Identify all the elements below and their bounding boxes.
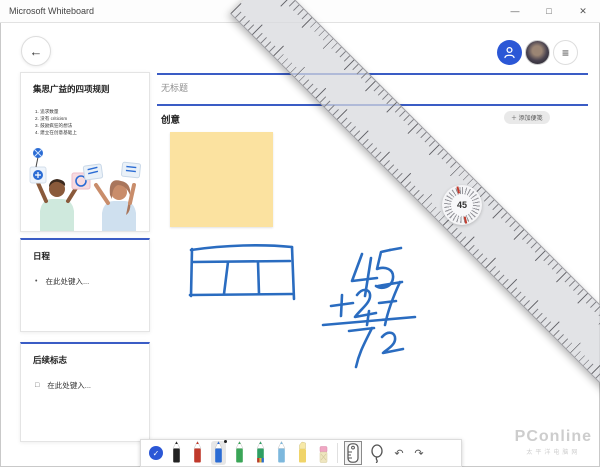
close-button[interactable]: ✕	[566, 0, 600, 22]
highlighter[interactable]	[295, 441, 310, 465]
top-right-actions: ≡	[497, 40, 578, 65]
brainstorm-rules-list: 1. 追求数量 2. 没有 criticism 3. 鼓励疯狂的想法 4. 建立…	[35, 108, 149, 136]
ink-digit-2	[382, 333, 403, 353]
app-title: Microsoft Whiteboard	[9, 6, 94, 16]
pen-lightblue-icon	[275, 441, 288, 463]
user-avatar[interactable]	[525, 40, 550, 65]
rule-item: 3. 鼓励疯狂的想法	[35, 122, 149, 129]
back-arrow-icon: ←	[30, 44, 43, 59]
add-note-button[interactable]: ＋ 添加便笺	[504, 111, 550, 124]
pen-red-icon	[191, 441, 204, 463]
brainstorm-illustration	[22, 139, 148, 231]
pen-galaxy-icon	[254, 441, 267, 463]
brainstorm-card[interactable]: 集思广益的四项规则 1. 追求数量 2. 没有 criticism 3. 鼓励疯…	[20, 72, 150, 232]
rule-item: 2. 没有 criticism	[35, 115, 149, 122]
ruler[interactable]	[230, 0, 600, 438]
ink-digit-2	[355, 290, 376, 317]
hamburger-icon: ≡	[562, 47, 569, 59]
ruler-icon	[347, 443, 359, 463]
ink-table-right	[292, 247, 294, 299]
pen-red[interactable]	[190, 441, 205, 465]
eraser[interactable]	[316, 441, 331, 465]
ink-table-col1	[224, 262, 228, 294]
ruler-ticks-bottom	[231, 7, 600, 437]
pen-green[interactable]	[232, 441, 247, 465]
ink-table-col2	[258, 262, 259, 294]
agenda-placeholder-row[interactable]: • 在此处键入...	[35, 276, 149, 287]
ink-carry-mark	[367, 311, 369, 325]
highlighter-icon	[296, 441, 309, 463]
pen-lightblue[interactable]	[274, 441, 289, 465]
ruler-tool-button[interactable]	[344, 441, 362, 465]
lasso-icon	[370, 443, 384, 463]
toolbar-divider	[337, 443, 338, 463]
watermark-subtitle: 太平洋电脑网	[515, 447, 592, 456]
menu-button[interactable]: ≡	[553, 40, 578, 65]
ink-digit-5	[390, 248, 401, 250]
ink-digit-7	[379, 301, 396, 303]
ruler-angle-dial[interactable]: 45	[442, 185, 482, 225]
sticky-note[interactable]	[170, 132, 273, 227]
person-icon	[503, 46, 516, 59]
ink-digit-4	[365, 258, 371, 296]
agenda-placeholder: 在此处键入...	[45, 276, 89, 287]
minimize-button[interactable]: —	[498, 0, 532, 22]
ideas-section-title[interactable]: 创意	[161, 112, 180, 126]
maximize-button[interactable]: □	[532, 0, 566, 22]
ink-plus	[331, 303, 353, 306]
brainstorm-card-title: 集思广益的四项规则	[33, 83, 139, 95]
check-icon: ✓	[153, 449, 160, 458]
window-controls: — □ ✕	[498, 0, 600, 22]
ink-table-bottom	[190, 294, 292, 295]
followup-placeholder: 在此处键入...	[47, 380, 91, 391]
pen-black-icon	[170, 441, 183, 463]
eraser-icon	[317, 441, 330, 463]
ink-digit-5	[376, 250, 393, 288]
ink-digit-4	[352, 254, 377, 281]
ruler-ticks-bottom-major	[231, 3, 600, 437]
pen-toolbar: ✓	[140, 439, 462, 467]
agenda-card[interactable]: 日程 • 在此处键入...	[20, 238, 150, 332]
ink-sum-line	[323, 317, 415, 325]
ruler-angle-value: 45	[442, 185, 482, 225]
agenda-card-title: 日程	[33, 250, 139, 262]
ink-digit-7	[356, 328, 372, 367]
watermark: PConline 太平洋电脑网	[515, 428, 592, 456]
redo-button[interactable]: ↷	[412, 447, 426, 460]
bullet-icon: •	[35, 278, 37, 285]
pen-blue-icon	[212, 441, 225, 463]
followup-placeholder-row[interactable]: □ 在此处键入...	[35, 380, 149, 391]
undo-button[interactable]: ↶	[392, 447, 406, 460]
rule-item: 4. 建立在创意基础上	[35, 129, 149, 136]
pen-blue[interactable]	[211, 441, 226, 465]
ink-digit-7	[385, 282, 400, 325]
lasso-tool-button[interactable]	[368, 441, 386, 465]
followup-card-title: 后续标志	[33, 354, 139, 366]
ink-table-top	[191, 245, 292, 250]
rule-item: 1. 追求数量	[35, 108, 149, 115]
ink-digit-7	[378, 282, 402, 286]
back-button[interactable]: ←	[21, 36, 51, 66]
ink-table-left	[191, 249, 192, 296]
invite-button[interactable]	[497, 40, 522, 65]
pen-black[interactable]	[169, 441, 184, 465]
pen-galaxy[interactable]	[253, 441, 268, 465]
pen-green-icon	[233, 441, 246, 463]
whiteboard-app: Microsoft Whiteboard — □ ✕ ← ≡ 集思广益的四项规则…	[0, 0, 600, 467]
ink-digit-7	[349, 328, 374, 331]
ink-mode-button[interactable]: ✓	[149, 446, 163, 460]
watermark-logo: PConline	[515, 428, 592, 446]
board-title-field[interactable]: 无标题	[161, 81, 188, 94]
ink-plus	[341, 295, 342, 316]
ink-table-header-line	[192, 261, 290, 262]
board-divider-top	[157, 73, 588, 75]
checkbox-icon: □	[35, 382, 39, 389]
followup-card[interactable]: 后续标志 □ 在此处键入...	[20, 342, 150, 442]
